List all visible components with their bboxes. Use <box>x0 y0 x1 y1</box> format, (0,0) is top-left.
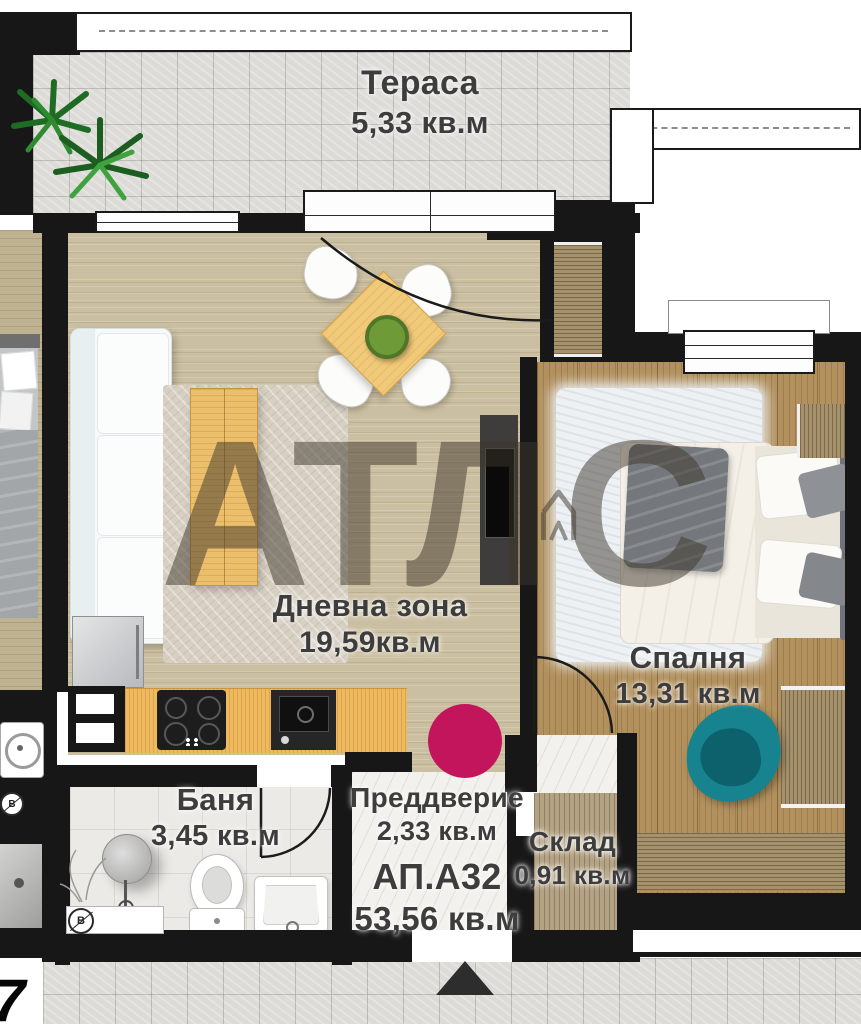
bedroom-name: Спалня <box>588 640 788 676</box>
kitchen-drawer <box>76 723 114 743</box>
wardrobe-bottom <box>630 833 857 892</box>
sill-line <box>305 215 554 216</box>
cooktop <box>157 690 226 750</box>
bed-throw-blanket <box>623 443 729 572</box>
neighbor-washing-machine <box>0 722 44 778</box>
sink-faucet <box>297 706 314 723</box>
refrigerator-handle <box>136 625 139 679</box>
coffee-table-seam <box>224 389 225 585</box>
sofa-cushion <box>97 435 169 536</box>
wall-terrace-bottom <box>240 213 303 233</box>
tv-screen <box>485 448 515 538</box>
sofa <box>70 328 172 644</box>
wall-living-vestibule <box>345 752 412 772</box>
wall-bedroom-right <box>845 362 861 893</box>
sink-basin <box>263 885 319 925</box>
armchair-seat <box>697 725 764 791</box>
neighbor-shower <box>0 844 42 928</box>
terrace-area: 5,33 кв.м <box>295 105 545 141</box>
wall-apartment-bottom <box>512 930 640 962</box>
outside-band <box>633 930 861 952</box>
label-storage: Склад 0,91 кв.м <box>505 826 640 891</box>
wall-living-left <box>42 230 68 692</box>
cooktop-knobs <box>185 738 199 746</box>
nightstand <box>797 404 852 458</box>
terrace-name: Тераса <box>295 64 545 103</box>
table-centerpiece-plant <box>365 315 409 359</box>
terrace-railing-top <box>75 12 632 52</box>
burner <box>165 697 187 719</box>
shaft-wood-panel <box>554 242 602 357</box>
water-meter-icon: В <box>68 908 94 934</box>
bedroom-window-sill <box>668 300 830 334</box>
vestibule-area: 2,33 кв.м <box>348 816 526 847</box>
toilet-inner <box>202 866 232 904</box>
bathroom-name: Баня <box>118 782 313 818</box>
wall-bedroom-bottom <box>633 893 861 930</box>
label-living: Дневна зона 19,59кв.м <box>250 588 490 660</box>
terrace-door-sill <box>303 190 556 233</box>
apartment-total-area: 53,56 кв.м <box>348 900 526 938</box>
burner <box>197 696 221 720</box>
label-terrace: Тераса 5,33 кв.м <box>295 64 545 141</box>
living-name: Дневна зона <box>250 588 490 624</box>
neighbor-unit-number: 7 <box>0 966 25 1024</box>
sink-panel-dot <box>281 736 289 744</box>
bathroom-sink <box>254 876 328 934</box>
bedroom-window <box>683 330 815 374</box>
entrance-arrow <box>436 961 494 995</box>
label-apartment: АП.А32 53,56 кв.м <box>348 856 526 938</box>
label-bedroom: Спалня 13,31 кв.м <box>588 640 788 711</box>
sofa-cushion <box>97 333 169 434</box>
entrance-location-dot <box>428 704 502 778</box>
apartment-code: АП.А32 <box>348 856 526 898</box>
toilet-button <box>214 918 220 924</box>
neighbor-water-meter-icon: В <box>0 792 24 816</box>
living-area: 19,59кв.м <box>250 626 490 660</box>
label-bathroom: Баня 3,45 кв.м <box>118 782 313 853</box>
bedroom-area: 13,31 кв.м <box>588 678 788 711</box>
wall-bedroom-top <box>815 332 861 362</box>
kitchen-cabinet-block <box>68 686 125 752</box>
refrigerator <box>72 616 144 688</box>
vestibule-arm-floor <box>537 735 617 793</box>
sill-divider <box>430 192 432 231</box>
railing-dash <box>99 30 608 32</box>
shower-drain <box>14 878 24 888</box>
living-terrace-window <box>95 211 240 233</box>
terrace-railing-right <box>620 108 861 150</box>
window-line <box>685 358 813 359</box>
washer-drum <box>5 733 41 769</box>
coffee-table <box>190 388 258 586</box>
neighbor-blanket <box>0 430 38 618</box>
window-line <box>97 222 238 223</box>
wall-bedroom-top <box>633 332 683 362</box>
window-line <box>685 345 813 346</box>
neighbor-pillow <box>0 351 37 392</box>
washer-dot <box>17 745 23 751</box>
storage-area: 0,91 кв.м <box>505 860 640 891</box>
wall-bedroom-left <box>520 357 537 735</box>
kitchen-drawer <box>76 694 114 714</box>
tv-cabinet <box>480 415 518 585</box>
wall-terrace-left <box>0 55 33 215</box>
bathroom-area: 3,45 кв.м <box>118 820 313 853</box>
floor-plan: В В 7 <box>0 0 861 1024</box>
label-vestibule: Преддверие 2,33 кв.м <box>348 782 526 847</box>
vestibule-name: Преддверие <box>348 782 526 814</box>
railing-dash <box>631 127 849 129</box>
burner <box>198 723 220 745</box>
neighbor-pillow <box>0 391 33 431</box>
wardrobe-right <box>781 686 849 808</box>
neighbor-bed-headboard <box>0 334 40 348</box>
sofa-backrest <box>71 329 95 643</box>
wall-line-bottom-right <box>633 952 861 957</box>
terrace-railing-notch <box>610 108 654 204</box>
wall-terrace-corner <box>0 12 80 55</box>
storage-name: Склад <box>505 826 640 858</box>
kitchen-sink-unit <box>271 690 336 750</box>
